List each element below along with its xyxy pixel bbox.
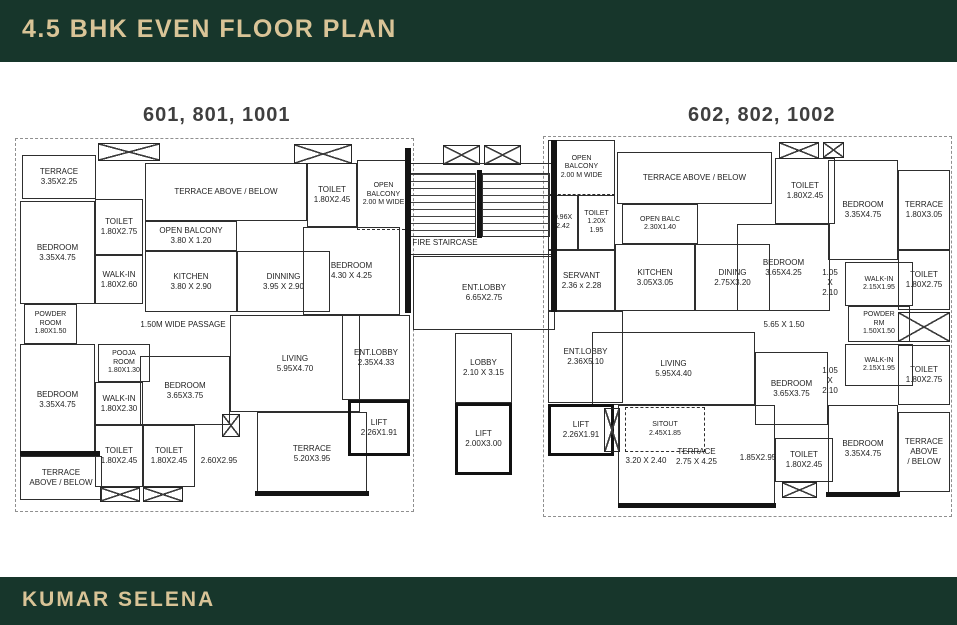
toilet-1: TOILET 1.80X2.75 <box>95 199 143 255</box>
toilet-2-label: TOILET 1.80X2.45 <box>314 185 350 205</box>
page: { "header": { "title": "4.5 BHK EVEN FLO… <box>0 0 957 625</box>
toilet-2: TOILET 1.80X2.45 <box>307 163 357 227</box>
page-title: 4.5 BHK EVEN FLOOR PLAN <box>22 15 397 44</box>
wall-terrace-right-bottom <box>618 503 776 508</box>
walkin-2: WALK-IN 1.80X2.30 <box>95 382 143 425</box>
open-balcony-1: OPEN BALCONY 3.80 X 1.20 <box>145 221 237 251</box>
lift-1-label: LIFT 2.26X1.91 <box>361 418 397 438</box>
shaft-top-right-a <box>779 142 819 159</box>
terrace-above-below-1-label: TERRACE ABOVE / BELOW <box>174 187 277 197</box>
bedroom-6-label: BEDROOM 3.35X4.75 <box>842 200 883 220</box>
walkin-3-label: WALK-IN 2.15X1.95 <box>863 276 895 293</box>
bedroom-1: BEDROOM 3.35X4.75 <box>20 201 95 304</box>
dim-3-20: 3.20 X 2.40 <box>618 454 674 468</box>
walkin-3: WALK-IN 2.15X1.95 <box>845 262 913 306</box>
terrace-above-below-3-label: TERRACE ABOVE / BELOW <box>643 173 746 183</box>
shaft-bottom-left-a <box>100 487 140 502</box>
shaft-lift-core-b <box>484 145 521 165</box>
dim-5-65: 5.65 X 1.50 <box>756 318 812 332</box>
toilet-8: TOILET 1.80X2.75 <box>898 345 950 405</box>
terrace-2-label: TERRACE 5.20X3.95 <box>293 444 331 464</box>
toilet-4: TOILET 1.80X2.45 <box>143 425 195 487</box>
wall-left-terrace-top <box>20 451 100 456</box>
lift-center: LIFT 2.00X3.00 <box>455 403 512 475</box>
kitchen-2: KITCHEN 3.05X3.05 <box>615 244 695 311</box>
living-1: LIVING 5.95X4.70 <box>230 315 360 412</box>
fire-staircase-label: FIRE STAIRCASE <box>406 236 484 250</box>
wall-bedroom8-bottom <box>826 492 900 497</box>
shaft-toilet-right <box>782 482 817 498</box>
toilet-4-label: TOILET 1.80X2.45 <box>151 446 187 466</box>
terrace-3-label: TERRACE 1.80X3.05 <box>905 200 943 220</box>
bedroom-2: BEDROOM 4.30 X 4.25 <box>303 227 400 315</box>
shaft-bottom-left-b <box>143 487 183 502</box>
living-1-label: LIVING 5.95X4.70 <box>277 354 313 374</box>
bedroom-3: BEDROOM 3.65X3.75 <box>140 356 230 425</box>
bedroom-4-label: BEDROOM 3.35X4.75 <box>37 390 78 410</box>
shaft-top-mid-left <box>294 144 352 164</box>
dim-1-85: 1.85X2.95 <box>736 451 780 465</box>
servant: SERVANT 2.36 x 2.28 <box>548 250 615 311</box>
terrace-3: TERRACE 1.80X3.05 <box>898 170 950 250</box>
walkin-1-label: WALK-IN 1.80X2.60 <box>101 270 137 290</box>
passage-label: 1.50M WIDE PASSAGE <box>128 318 238 332</box>
shaft-living-left <box>222 414 240 437</box>
wall-core-right <box>551 140 557 312</box>
dim-5-65-label: 5.65 X 1.50 <box>764 320 805 330</box>
shaft-top-right-b <box>823 142 844 158</box>
brand-name: KUMAR SELENA <box>22 588 215 612</box>
open-balcony-3: OPEN BALCONY 2.00 M WIDE <box>548 140 615 195</box>
walkin-4-label: WALK-IN 2.15X1.95 <box>863 357 895 374</box>
toilet-5: TOILET 1.20X 1.95 <box>578 195 615 250</box>
floor-plan: 601, 801, 1001 602, 802, 1002 TERRACE 3.… <box>0 62 957 577</box>
terrace-top-left-label: TERRACE 3.35X2.25 <box>40 167 78 187</box>
dim-1-05-b: 1.05 X 2.10 <box>816 360 844 402</box>
toilet-9: TOILET 1.80X2.45 <box>775 438 833 482</box>
dim-1-05-a: 1.05 X 2.10 <box>816 262 844 304</box>
lobby-center-label: LOBBY 2.10 X 3.15 <box>463 358 504 378</box>
dim-3-20-label: 3.20 X 2.40 <box>626 456 667 466</box>
ent-lobby-1-label: ENT.LOBBY 2.35X4.33 <box>354 348 398 368</box>
shaft-lift-core-a <box>443 145 480 165</box>
kitchen-1-label: KITCHEN 3.80 X 2.90 <box>171 272 212 292</box>
stair-flight-1 <box>410 173 476 237</box>
walkin-1: WALK-IN 1.80X2.60 <box>95 255 143 304</box>
bedroom-8-label: BEDROOM 3.35X4.75 <box>842 439 883 459</box>
toilet-8-label: TOILET 1.80X2.75 <box>906 365 942 385</box>
open-balcony-2-label: OPEN BALCONY 2.00 M WIDE <box>363 182 405 207</box>
dim-1-05-a-label: 1.05 X 2.10 <box>822 268 838 298</box>
servant-label: SERVANT 2.36 x 2.28 <box>562 271 602 291</box>
stair-flight-2 <box>482 173 550 237</box>
bedroom-3-label: BEDROOM 3.65X3.75 <box>164 381 205 401</box>
ent-lobby-center: ENT.LOBBY 6.65X2.75 <box>413 256 555 330</box>
ent-lobby-1: ENT.LOBBY 2.35X4.33 <box>342 315 410 400</box>
walkin-2-label: WALK-IN 1.80X2.30 <box>101 394 137 414</box>
wall-terrace-left-bottom <box>255 491 369 496</box>
living-2: LIVING 5.95X4.40 <box>592 332 755 405</box>
terrace-above-below-4: TERRACE ABOVE / BELOW <box>898 412 950 492</box>
open-balcony-1-label: OPEN BALCONY 3.80 X 1.20 <box>159 226 222 246</box>
toilet-3: TOILET 1.80X2.45 <box>95 425 143 487</box>
powder-room-1: POWDER ROOM 1.80X1.50 <box>24 304 77 344</box>
bedroom-2-label: BEDROOM 4.30 X 4.25 <box>331 261 372 281</box>
ent-lobby-center-label: ENT.LOBBY 6.65X2.75 <box>462 283 506 303</box>
dim-2-60: 2.60X2.95 <box>193 454 245 468</box>
header-band: 4.5 BHK EVEN FLOOR PLAN <box>0 0 957 62</box>
dinning-1-label: DINNING 3.95 X 2.90 <box>263 272 304 292</box>
living-2-label: LIVING 5.95X4.40 <box>655 359 691 379</box>
wall-stair-mid <box>477 170 482 238</box>
pooja-room-label: POOJA ROOM 1.80X1.30 <box>108 350 140 375</box>
toilet-1-label: TOILET 1.80X2.75 <box>101 217 137 237</box>
toilet-9-label: TOILET 1.80X2.45 <box>786 450 822 470</box>
shaft-sitout <box>604 408 620 452</box>
terrace-top-left: TERRACE 3.35X2.25 <box>22 155 96 199</box>
powder-room-1-label: POWDER ROOM 1.80X1.50 <box>35 311 67 336</box>
bedroom-4: BEDROOM 3.35X4.75 <box>20 344 95 456</box>
terrace-above-below-4-label: TERRACE ABOVE / BELOW <box>905 437 943 467</box>
kitchen-2-label: KITCHEN 3.05X3.05 <box>637 268 673 288</box>
unit-left-label: 601, 801, 1001 <box>143 104 290 127</box>
lift-center-label: LIFT 2.00X3.00 <box>465 429 501 449</box>
bedroom-8: BEDROOM 3.35X4.75 <box>828 405 898 493</box>
open-balcony-4: OPEN BALC 2.30X1.40 <box>622 204 698 244</box>
lobby-center: LOBBY 2.10 X 3.15 <box>455 333 512 403</box>
toilet-6: TOILET 1.80X2.45 <box>775 158 835 224</box>
dim-2-60-label: 2.60X2.95 <box>201 456 237 466</box>
bedroom-1-label: BEDROOM 3.35X4.75 <box>37 243 78 263</box>
dim-1-05-b-label: 1.05 X 2.10 <box>822 366 838 396</box>
open-balcony-2: OPEN BALCONY 2.00 M WIDE <box>357 160 410 230</box>
bedroom-7-label: BEDROOM 3.65X3.75 <box>771 379 812 399</box>
dim-1-85-label: 1.85X2.95 <box>740 453 776 463</box>
terrace-above-below-2-label: TERRACE ABOVE / BELOW <box>29 468 92 488</box>
passage-label-label: 1.50M WIDE PASSAGE <box>140 320 225 330</box>
fire-staircase-label-label: FIRE STAIRCASE <box>412 238 477 248</box>
shaft-top-left <box>98 143 160 161</box>
lift-1: LIFT 2.26X1.91 <box>348 400 410 456</box>
powder-room-2-label: POWDER RM 1.50X1.50 <box>863 311 895 336</box>
kitchen-1: KITCHEN 3.80 X 2.90 <box>145 251 237 312</box>
sitout-label: SITOUT 2.45X1.85 <box>649 421 681 438</box>
lift-2-label: LIFT 2.26X1.91 <box>563 420 599 440</box>
terrace-above-below-1: TERRACE ABOVE / BELOW <box>145 163 307 221</box>
bedroom-5-label: BEDROOM 3.65X4.25 <box>763 258 804 278</box>
wall-core-left <box>405 148 411 313</box>
sitout: SITOUT 2.45X1.85 <box>625 407 705 452</box>
terrace-above-below-3: TERRACE ABOVE / BELOW <box>617 152 772 204</box>
open-balcony-3-label: OPEN BALCONY 2.00 M WIDE <box>561 155 603 180</box>
toilet-6-label: TOILET 1.80X2.45 <box>787 181 823 201</box>
bedroom-6: BEDROOM 3.35X4.75 <box>828 160 898 260</box>
unit-right-label: 602, 802, 1002 <box>688 104 835 127</box>
footer-band: KUMAR SELENA <box>0 577 957 625</box>
terrace-above-below-2: TERRACE ABOVE / BELOW <box>20 456 102 500</box>
shaft-right-edge <box>898 312 950 342</box>
toilet-3-label: TOILET 1.80X2.45 <box>101 446 137 466</box>
open-balcony-4-label: OPEN BALC 2.30X1.40 <box>640 216 680 233</box>
toilet-5-label: TOILET 1.20X 1.95 <box>584 210 608 235</box>
